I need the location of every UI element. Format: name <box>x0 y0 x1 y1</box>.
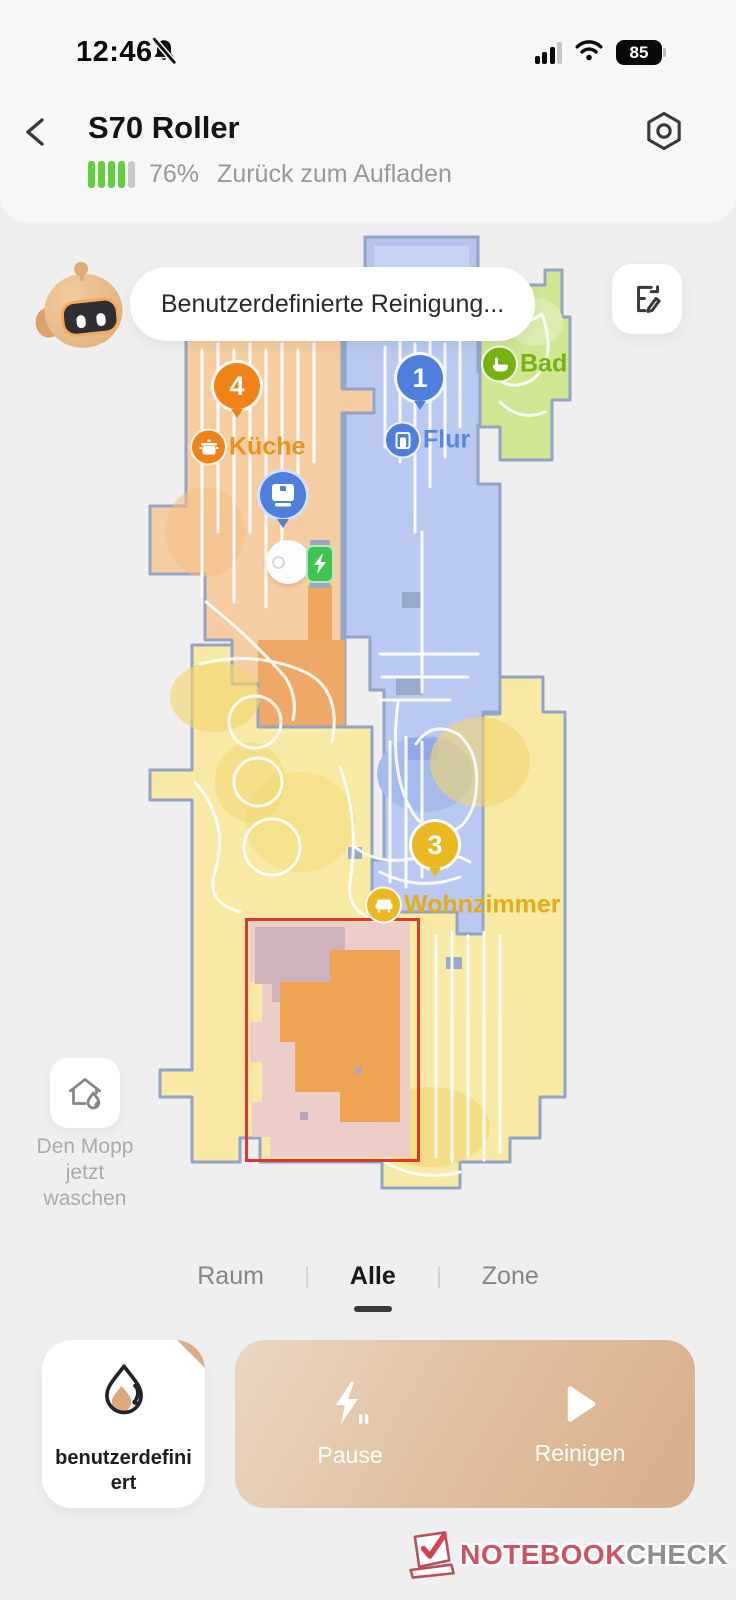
pot-icon <box>190 429 227 466</box>
assistant-message-bubble[interactable]: Benutzerdefinierte Reinigung... <box>130 267 535 341</box>
notebookcheck-watermark: NOTEBOOKCHECK <box>402 1528 728 1582</box>
back-button[interactable] <box>18 112 54 152</box>
tab-alle[interactable]: Alle <box>342 1262 404 1291</box>
cellular-signal-icon <box>535 42 563 64</box>
robot-position-marker <box>266 540 310 584</box>
robot-battery-cells <box>88 161 135 188</box>
watermark-check: CHECK <box>626 1539 728 1571</box>
settings-button[interactable] <box>642 108 686 154</box>
room-label-flur[interactable]: Flur <box>384 422 470 459</box>
dock-icon <box>257 469 309 521</box>
wifi-icon <box>574 38 604 67</box>
robot-battery-percent: 76% <box>149 160 199 189</box>
battery-level: 85 <box>630 43 649 63</box>
assistant-message: Benutzerdefinierte Reinigung... <box>161 290 504 319</box>
status-bar: 12:46 <box>0 30 736 74</box>
mode-tabs: Raum Alle Zone <box>0 1262 736 1291</box>
room-label-wohnzimmer[interactable]: Wohnzimmer <box>365 887 561 924</box>
robot-battery-row: 76% Zurück zum Aufladen <box>88 160 452 189</box>
room-pin-kueche[interactable]: 4 <box>211 360 263 420</box>
room-label-kueche[interactable]: Küche <box>190 429 305 466</box>
pause-button[interactable]: Pause <box>235 1340 465 1508</box>
tab-zone[interactable]: Zone <box>474 1262 547 1291</box>
room-pin-flur[interactable]: 1 <box>394 352 446 412</box>
pause-icon <box>328 1380 372 1428</box>
room-badge: 3 <box>427 830 442 861</box>
map-area[interactable]: Benutzerdefinierte Reinigung... 4 1 3 <box>0 222 736 1200</box>
sofa-icon <box>365 887 402 924</box>
room-badge: 1 <box>412 363 427 394</box>
selected-zone-rectangle[interactable] <box>245 918 420 1162</box>
robot-status-text: Zurück zum Aufladen <box>217 160 452 189</box>
cleaning-control-panel: Pause Reinigen <box>235 1340 695 1508</box>
app-screen: Benutzerdefinierte Reinigung... 4 1 3 <box>0 0 736 1600</box>
edit-map-button[interactable] <box>612 264 682 334</box>
bath-icon <box>481 346 518 383</box>
page-title: S70 Roller <box>88 110 240 146</box>
clock: 12:46 <box>76 36 153 69</box>
clean-button[interactable]: Reinigen <box>465 1340 695 1508</box>
room-badge: 4 <box>229 371 244 402</box>
wash-mop-label: Den Mopp jetzt waschen <box>10 1134 160 1212</box>
room-pin-wohnzimmer[interactable]: 3 <box>409 819 461 879</box>
edit-map-icon <box>628 280 666 318</box>
wash-mop-button[interactable] <box>50 1058 120 1128</box>
custom-clean-label: benutzerdefiniert <box>50 1446 197 1496</box>
lightning-icon <box>312 553 328 575</box>
house-droplet-icon <box>62 1070 108 1116</box>
tab-divider <box>306 1266 308 1288</box>
custom-droplet-icon <box>85 1354 163 1437</box>
tab-raum[interactable]: Raum <box>189 1262 272 1291</box>
custom-clean-card[interactable]: benutzerdefiniert <box>42 1340 205 1508</box>
door-icon <box>384 422 421 459</box>
tab-divider <box>438 1266 440 1288</box>
laptop-check-icon <box>402 1528 460 1582</box>
assistant-robot-avatar <box>31 255 132 356</box>
battery-status-icon: 85 <box>616 40 666 65</box>
dock-station-pin[interactable] <box>257 469 309 531</box>
notifications-muted-icon <box>150 37 178 70</box>
play-icon <box>560 1382 600 1426</box>
charging-dock-icon <box>306 540 334 588</box>
watermark-notebook: NOTEBOOK <box>460 1539 626 1571</box>
corner-fold <box>177 1340 205 1368</box>
header-card: 12:46 <box>0 0 736 222</box>
room-label-bad[interactable]: Bad <box>481 346 567 383</box>
